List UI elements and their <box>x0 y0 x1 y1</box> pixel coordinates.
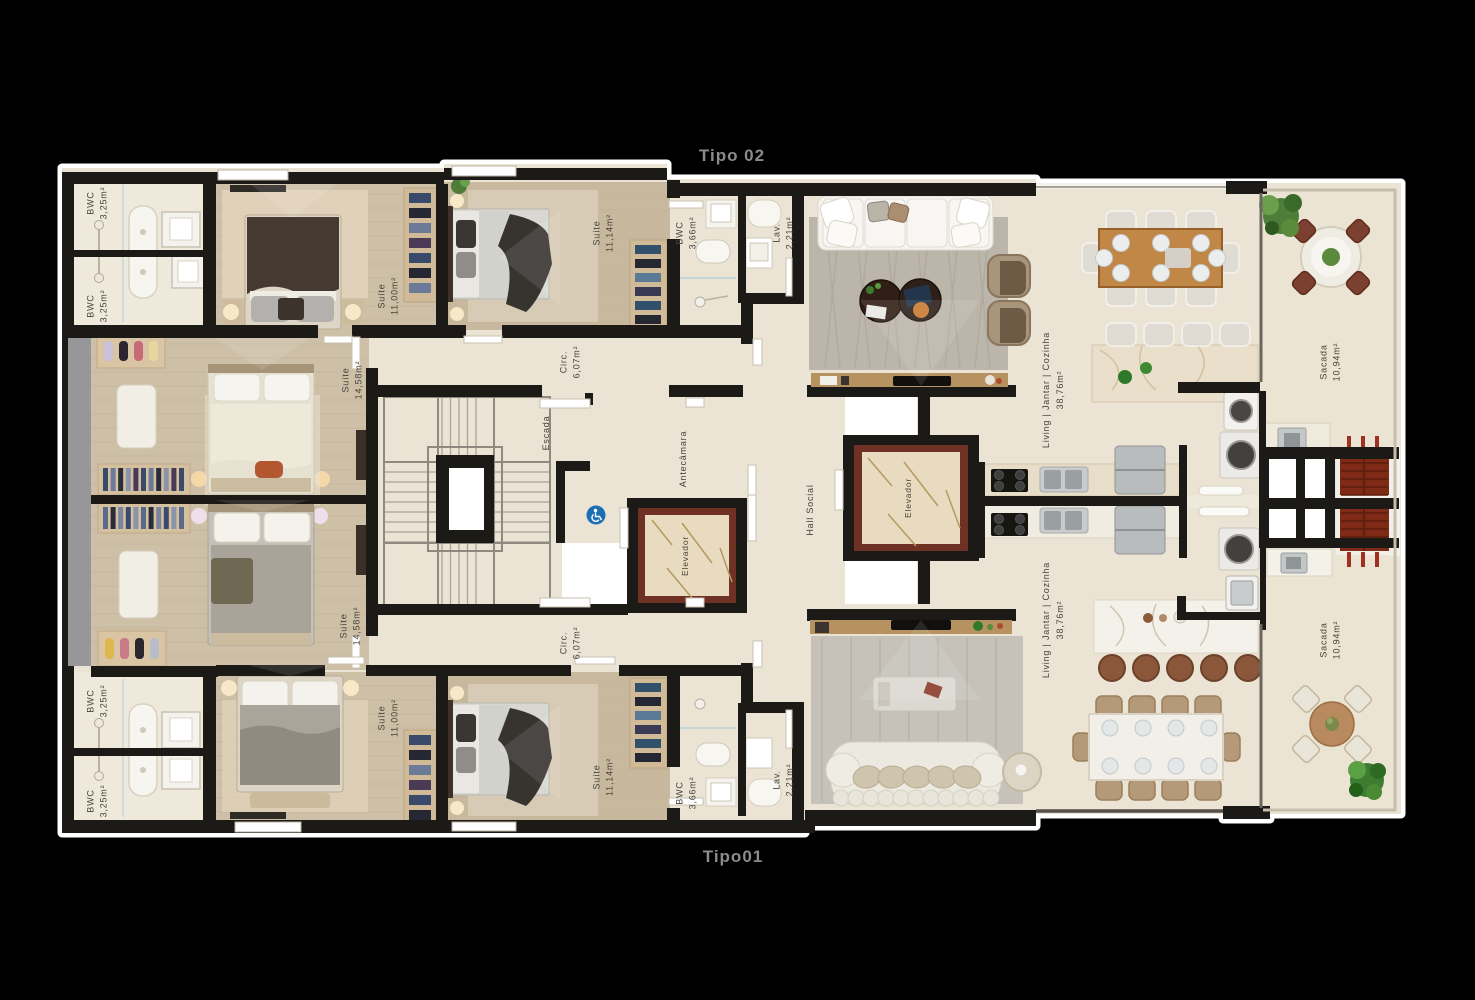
svg-text:BWC: BWC <box>86 689 96 712</box>
svg-text:Escada: Escada <box>541 416 551 451</box>
svg-text:6,07m²: 6,07m² <box>572 627 582 660</box>
svg-text:Lav.: Lav. <box>772 223 782 243</box>
svg-text:Circ.: Circ. <box>559 632 569 655</box>
svg-text:BWC: BWC <box>675 781 685 804</box>
svg-text:Suíte: Suíte <box>377 705 387 730</box>
svg-text:BWC: BWC <box>86 191 96 214</box>
svg-text:10,94m²: 10,94m² <box>1332 621 1342 660</box>
svg-text:11,00m²: 11,00m² <box>390 277 400 315</box>
svg-text:3,25m²: 3,25m² <box>99 290 109 323</box>
svg-text:Suíte: Suíte <box>377 283 387 308</box>
svg-text:Hall Social: Hall Social <box>805 484 815 535</box>
svg-text:Tipo 02: Tipo 02 <box>699 146 765 165</box>
svg-text:Suíte: Suíte <box>592 220 602 245</box>
svg-text:Suíte: Suíte <box>339 613 349 638</box>
svg-text:3,66m²: 3,66m² <box>688 217 698 250</box>
svg-text:Living | Jantar | Cozinha: Living | Jantar | Cozinha <box>1041 332 1051 448</box>
svg-text:Tipo01: Tipo01 <box>703 847 763 866</box>
svg-text:10,94m²: 10,94m² <box>1332 343 1342 382</box>
svg-text:Living | Jantar | Cozinha: Living | Jantar | Cozinha <box>1041 562 1051 678</box>
svg-text:38,76m²: 38,76m² <box>1055 601 1065 640</box>
svg-text:3,25m²: 3,25m² <box>99 187 109 220</box>
svg-text:Suíte: Suíte <box>592 764 602 789</box>
svg-text:Elevador: Elevador <box>903 478 913 518</box>
svg-text:BWC: BWC <box>86 789 96 812</box>
svg-text:Circ.: Circ. <box>559 351 569 374</box>
svg-text:2,21m²: 2,21m² <box>785 764 795 797</box>
svg-text:3,66m²: 3,66m² <box>688 777 698 810</box>
svg-text:Sacada: Sacada <box>1319 622 1329 657</box>
svg-text:2,21m²: 2,21m² <box>785 217 795 250</box>
svg-text:11,14m²: 11,14m² <box>605 214 615 252</box>
svg-text:11,00m²: 11,00m² <box>390 699 400 737</box>
svg-text:3,25m²: 3,25m² <box>99 685 109 718</box>
svg-text:6,07m²: 6,07m² <box>572 346 582 379</box>
svg-text:BWC: BWC <box>675 221 685 244</box>
svg-text:Lav.: Lav. <box>772 770 782 790</box>
svg-text:38,76m²: 38,76m² <box>1055 371 1065 410</box>
svg-text:14,58m²: 14,58m² <box>352 607 362 646</box>
svg-text:Elevador: Elevador <box>680 536 690 576</box>
svg-text:Antecâmara: Antecâmara <box>678 431 688 488</box>
svg-text:3,25m²: 3,25m² <box>99 785 109 818</box>
svg-text:14,58m²: 14,58m² <box>354 361 364 400</box>
svg-text:11,14m²: 11,14m² <box>605 758 615 796</box>
svg-text:Sacada: Sacada <box>1319 344 1329 379</box>
svg-text:Suíte: Suíte <box>341 367 351 392</box>
svg-text:BWC: BWC <box>86 294 96 317</box>
